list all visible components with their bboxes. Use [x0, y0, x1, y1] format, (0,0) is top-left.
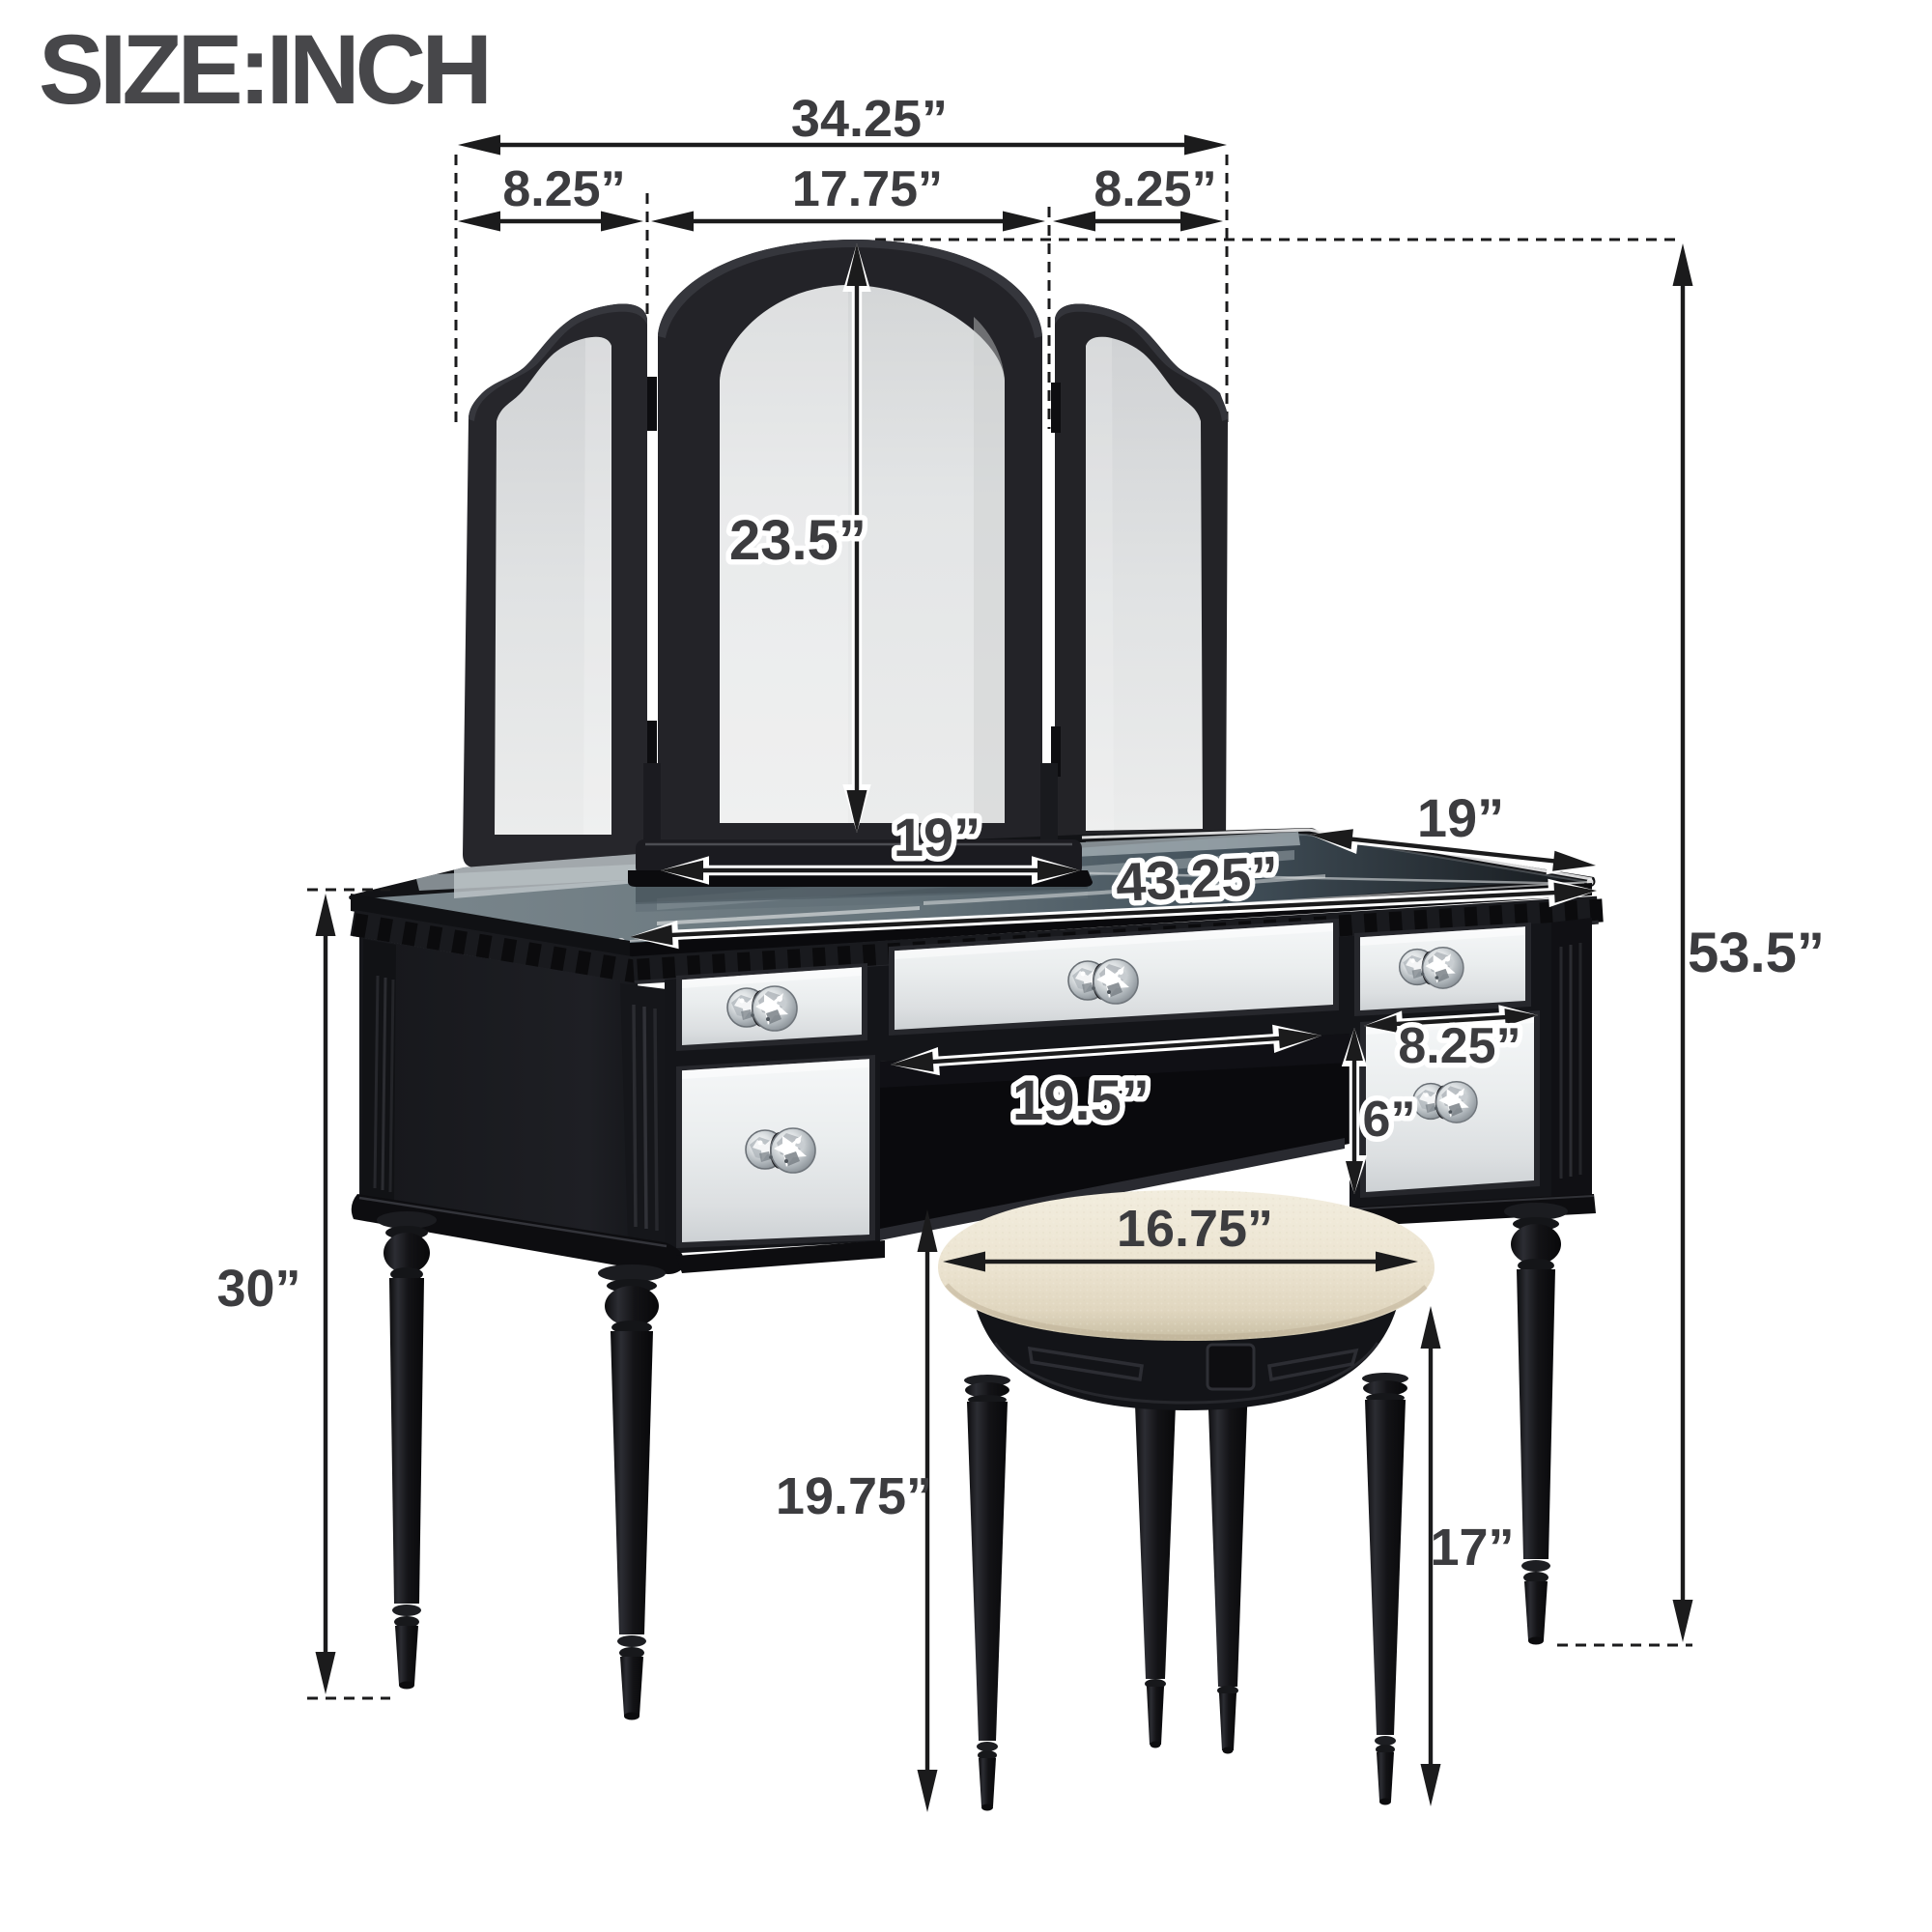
svg-text:23.5”: 23.5”: [729, 509, 867, 572]
svg-text:17”: 17”: [1430, 1519, 1514, 1577]
svg-text:53.5”: 53.5”: [1688, 922, 1825, 984]
svg-text:17.75”: 17.75”: [792, 161, 943, 217]
svg-text:30”: 30”: [216, 1260, 300, 1318]
svg-text:34.25”: 34.25”: [791, 90, 948, 148]
svg-text:43.25”: 43.25”: [1115, 844, 1280, 913]
svg-text:19”: 19”: [1417, 787, 1504, 848]
svg-text:16.75”: 16.75”: [1117, 1200, 1273, 1258]
svg-text:19.75”: 19.75”: [776, 1467, 932, 1525]
svg-text:19.5”: 19.5”: [1012, 1069, 1150, 1132]
svg-text:6”: 6”: [1363, 1092, 1416, 1148]
svg-text:8.25”: 8.25”: [1398, 1018, 1520, 1074]
svg-text:SIZE:INCH: SIZE:INCH: [39, 14, 488, 125]
svg-text:8.25”: 8.25”: [502, 161, 625, 217]
svg-text:19”: 19”: [894, 807, 980, 867]
svg-text:8.25”: 8.25”: [1094, 161, 1216, 217]
